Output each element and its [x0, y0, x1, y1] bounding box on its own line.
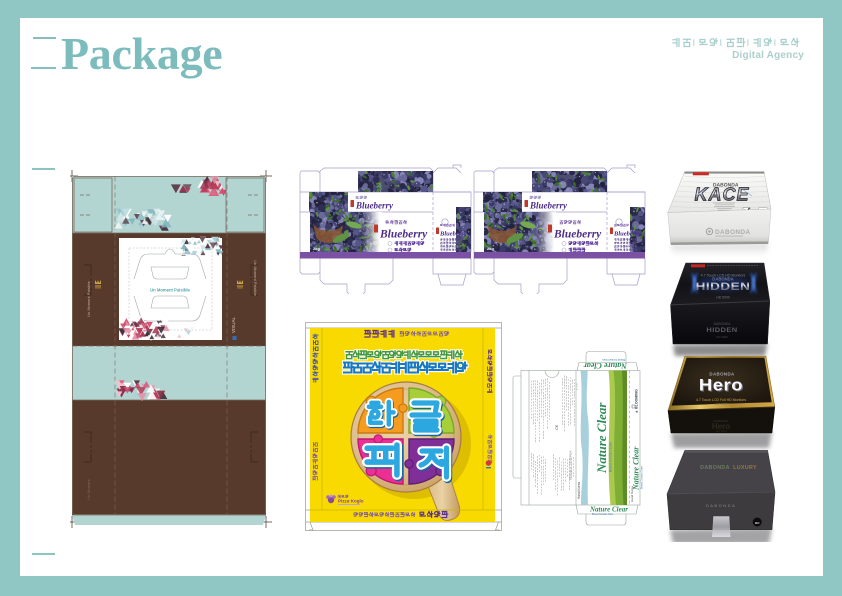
svg-text:HIDDEN: HIDDEN: [706, 327, 737, 333]
svg-text:▲ BLOOMING: ▲ BLOOMING: [635, 389, 639, 414]
svg-text:Pizza·Koglo: Pizza·Koglo: [338, 499, 364, 504]
svg-text:Brand Contact Care: Brand Contact Care: [609, 442, 613, 472]
svg-text:Nature Clear: Nature Clear: [594, 402, 609, 474]
svg-text:Blueberry: Blueberry: [355, 201, 394, 211]
svg-text:DАBONDA: DАBONDA: [706, 503, 736, 508]
svg-text:C€: C€: [554, 424, 559, 430]
svg-text:Brand Contact Care: Brand Contact Care: [592, 513, 614, 516]
svg-text:DАBONDA: DАBONDA: [700, 465, 730, 471]
svg-text:Un Moment Paisible: Un Moment Paisible: [86, 280, 91, 317]
svg-text:Hero: Hero: [699, 375, 743, 394]
svg-text:Blueberry: Blueberry: [439, 231, 467, 238]
svg-text:DАBONDA: DАBONDA: [714, 322, 732, 326]
svg-text:KACE: KACE: [694, 185, 749, 205]
svg-text:Blueberry: Blueberry: [613, 231, 641, 238]
svg-text:Hand Korea: Hand Korea: [577, 482, 581, 499]
svg-text:REPUBLIC OF KOREA: REPUBLIC OF KOREA: [569, 451, 573, 480]
svg-text:HD 5000: HD 5000: [716, 335, 728, 339]
svg-text:HD 5000: HD 5000: [716, 296, 729, 300]
svg-text:Un Moment Paisible: Un Moment Paisible: [253, 260, 258, 297]
svg-text:Blueberry: Blueberry: [553, 229, 602, 241]
svg-text:VISUAL: VISUAL: [231, 316, 236, 333]
svg-text:HRT 9000: HRT 9000: [714, 402, 728, 406]
svg-text:Un Moment: Un Moment: [86, 478, 91, 500]
svg-text:BO: BO: [755, 521, 760, 525]
svg-text:Nature Clear: Nature Clear: [632, 446, 641, 491]
svg-text:HIDDEN: HIDDEN: [696, 280, 751, 293]
svg-text:HRT 9000: HRT 9000: [715, 429, 727, 433]
svg-text:2kg: 2kg: [313, 246, 320, 251]
svg-text:Hand Korea: Hand Korea: [630, 486, 634, 502]
svg-text:Blueberry: Blueberry: [379, 229, 428, 241]
svg-text:LUXURY: LUXURY: [733, 465, 757, 471]
svg-text:Brand Contact Care: Brand Contact Care: [602, 358, 625, 362]
svg-text:Un Moment Paisible: Un Moment Paisible: [150, 288, 190, 293]
svg-text:□ ○ □: □ ○ □: [575, 383, 579, 390]
svg-text:Brand Contact Care: Brand Contact Care: [640, 466, 644, 489]
svg-text:Nature Clear: Nature Clear: [583, 361, 628, 370]
svg-text:2kg: 2kg: [487, 246, 494, 251]
svg-text:Blueberry: Blueberry: [529, 201, 568, 211]
svg-text:DАBONDA: DАBONDA: [715, 229, 750, 236]
